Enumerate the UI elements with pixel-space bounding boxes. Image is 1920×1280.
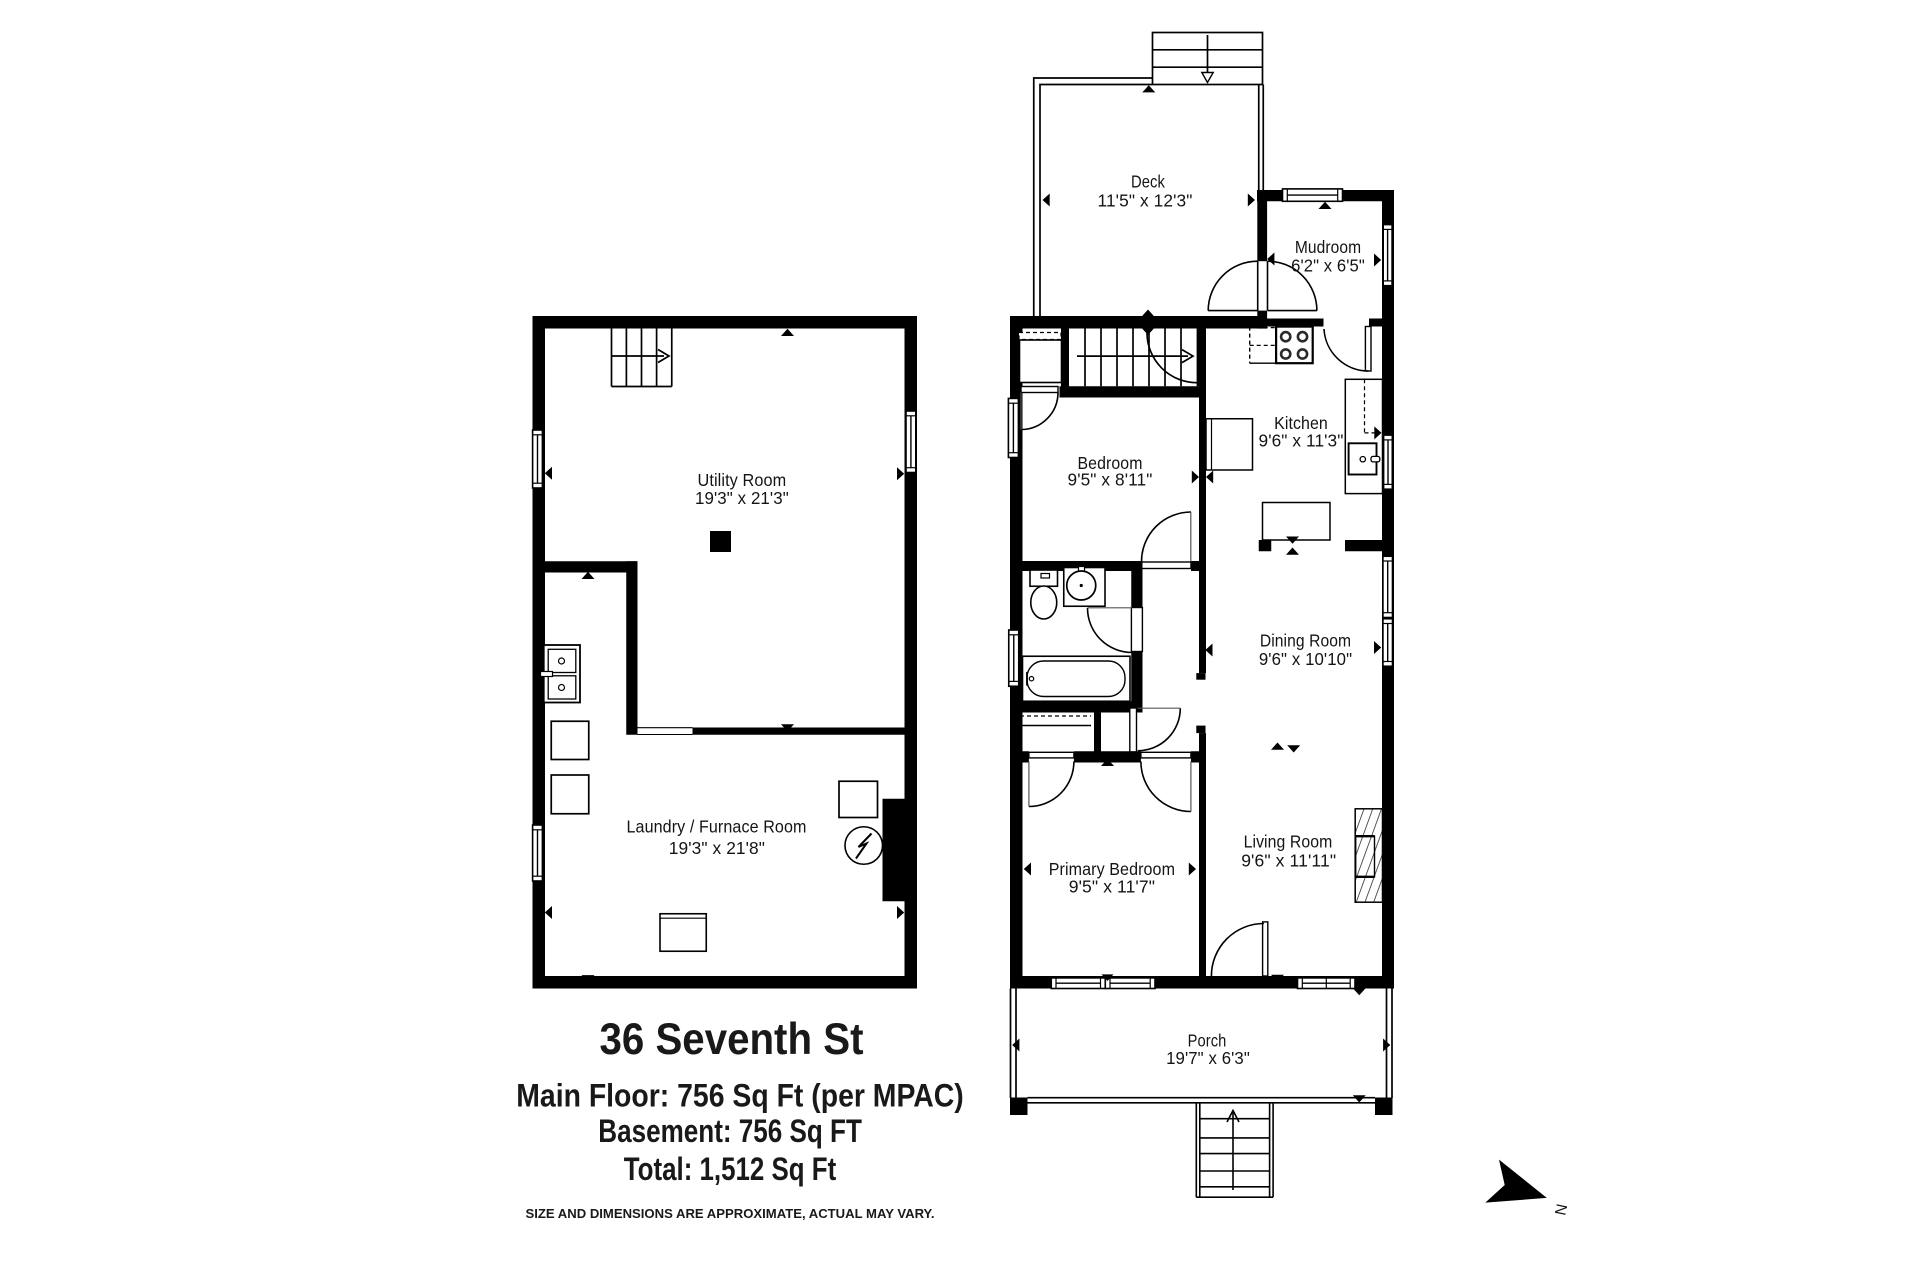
svg-text:Dining Room: Dining Room — [1260, 630, 1351, 650]
svg-text:Basement: 756 Sq FT: Basement: 756 Sq FT — [598, 1112, 862, 1149]
svg-text:Living Room: Living Room — [1244, 832, 1333, 852]
svg-text:Mudroom: Mudroom — [1295, 237, 1361, 257]
svg-text:9'6" x 11'3": 9'6" x 11'3" — [1259, 430, 1344, 450]
svg-text:Total: 1,512 Sq Ft: Total: 1,512 Sq Ft — [624, 1150, 837, 1187]
svg-text:36 Seventh St: 36 Seventh St — [600, 1015, 864, 1064]
svg-text:SIZE AND DIMENSIONS ARE APPROX: SIZE AND DIMENSIONS ARE APPROXIMATE, ACT… — [526, 1206, 935, 1221]
svg-text:19'3" x 21'3": 19'3" x 21'3" — [695, 488, 789, 508]
svg-text:Deck: Deck — [1131, 172, 1165, 192]
svg-text:Laundry / Furnace Room: Laundry / Furnace Room — [627, 817, 807, 837]
svg-text:11'5" x 12'3": 11'5" x 12'3" — [1098, 190, 1193, 210]
svg-text:19'7" x 6'3": 19'7" x 6'3" — [1166, 1048, 1250, 1068]
svg-text:9'6" x 10'10": 9'6" x 10'10" — [1259, 649, 1352, 669]
svg-text:9'5" x 11'7": 9'5" x 11'7" — [1069, 877, 1155, 897]
svg-text:19'3" x 21'8": 19'3" x 21'8" — [669, 838, 765, 858]
svg-text:9'6" x 11'11": 9'6" x 11'11" — [1241, 850, 1336, 870]
svg-text:6'2" x 6'5": 6'2" x 6'5" — [1291, 255, 1365, 275]
svg-text:Main Floor: 756 Sq Ft (per MPA: Main Floor: 756 Sq Ft (per MPAC) — [516, 1077, 964, 1114]
svg-text:9'5" x 8'11": 9'5" x 8'11" — [1068, 469, 1153, 489]
